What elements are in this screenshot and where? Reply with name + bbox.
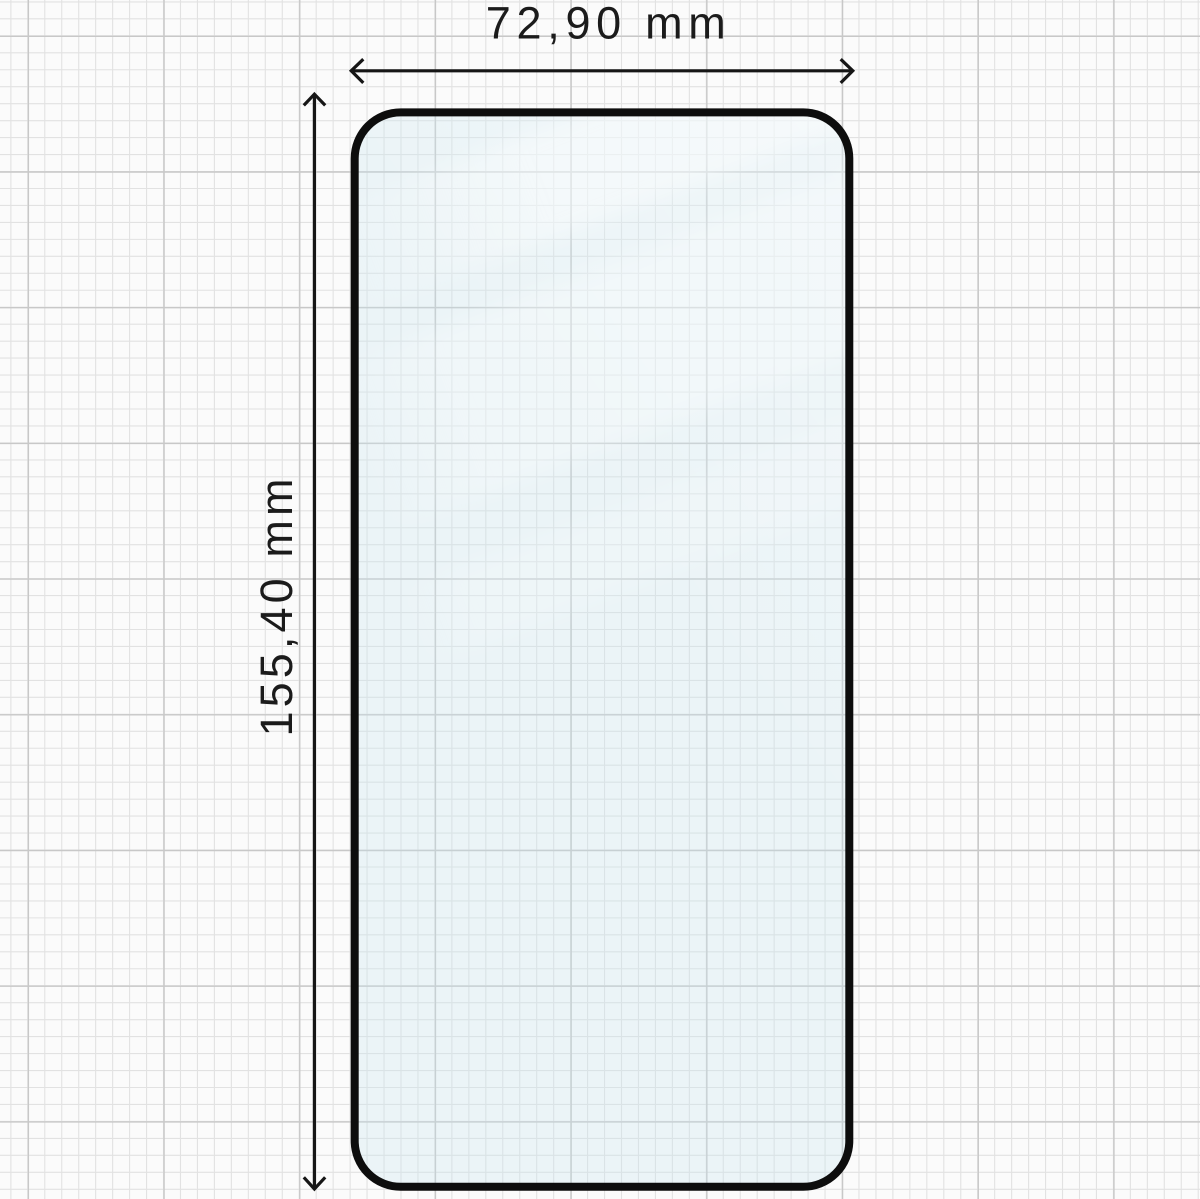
svg-text:72,90 mm: 72,90 mm — [486, 0, 726, 49]
svg-text:155,40 mm: 155,40 mm — [251, 479, 302, 737]
